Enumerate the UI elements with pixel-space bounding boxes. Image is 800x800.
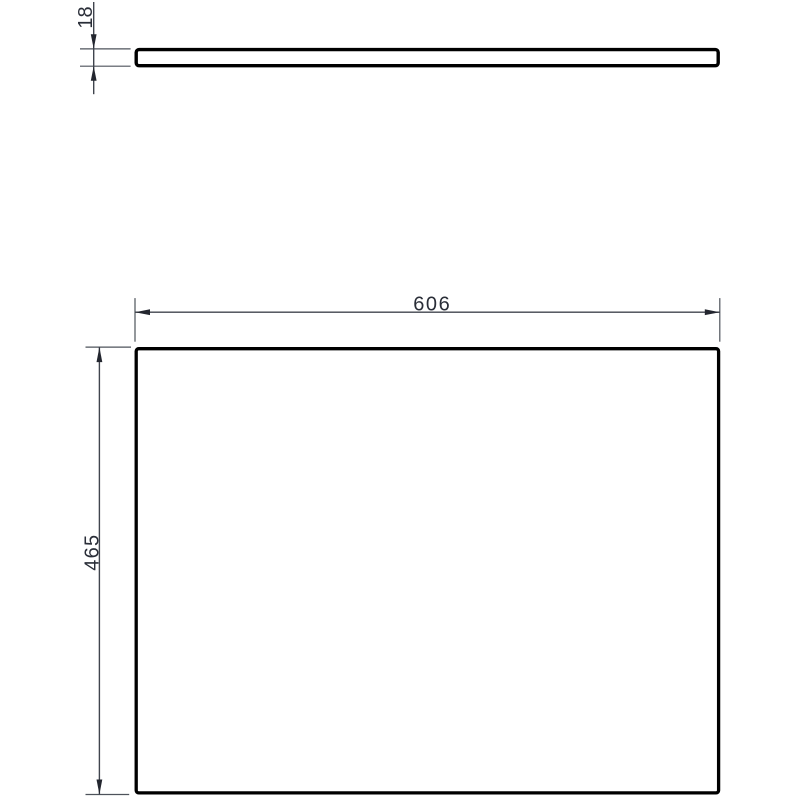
svg-text:18: 18 [75, 6, 97, 28]
svg-text:606: 606 [413, 293, 451, 315]
svg-text:465: 465 [81, 534, 103, 571]
